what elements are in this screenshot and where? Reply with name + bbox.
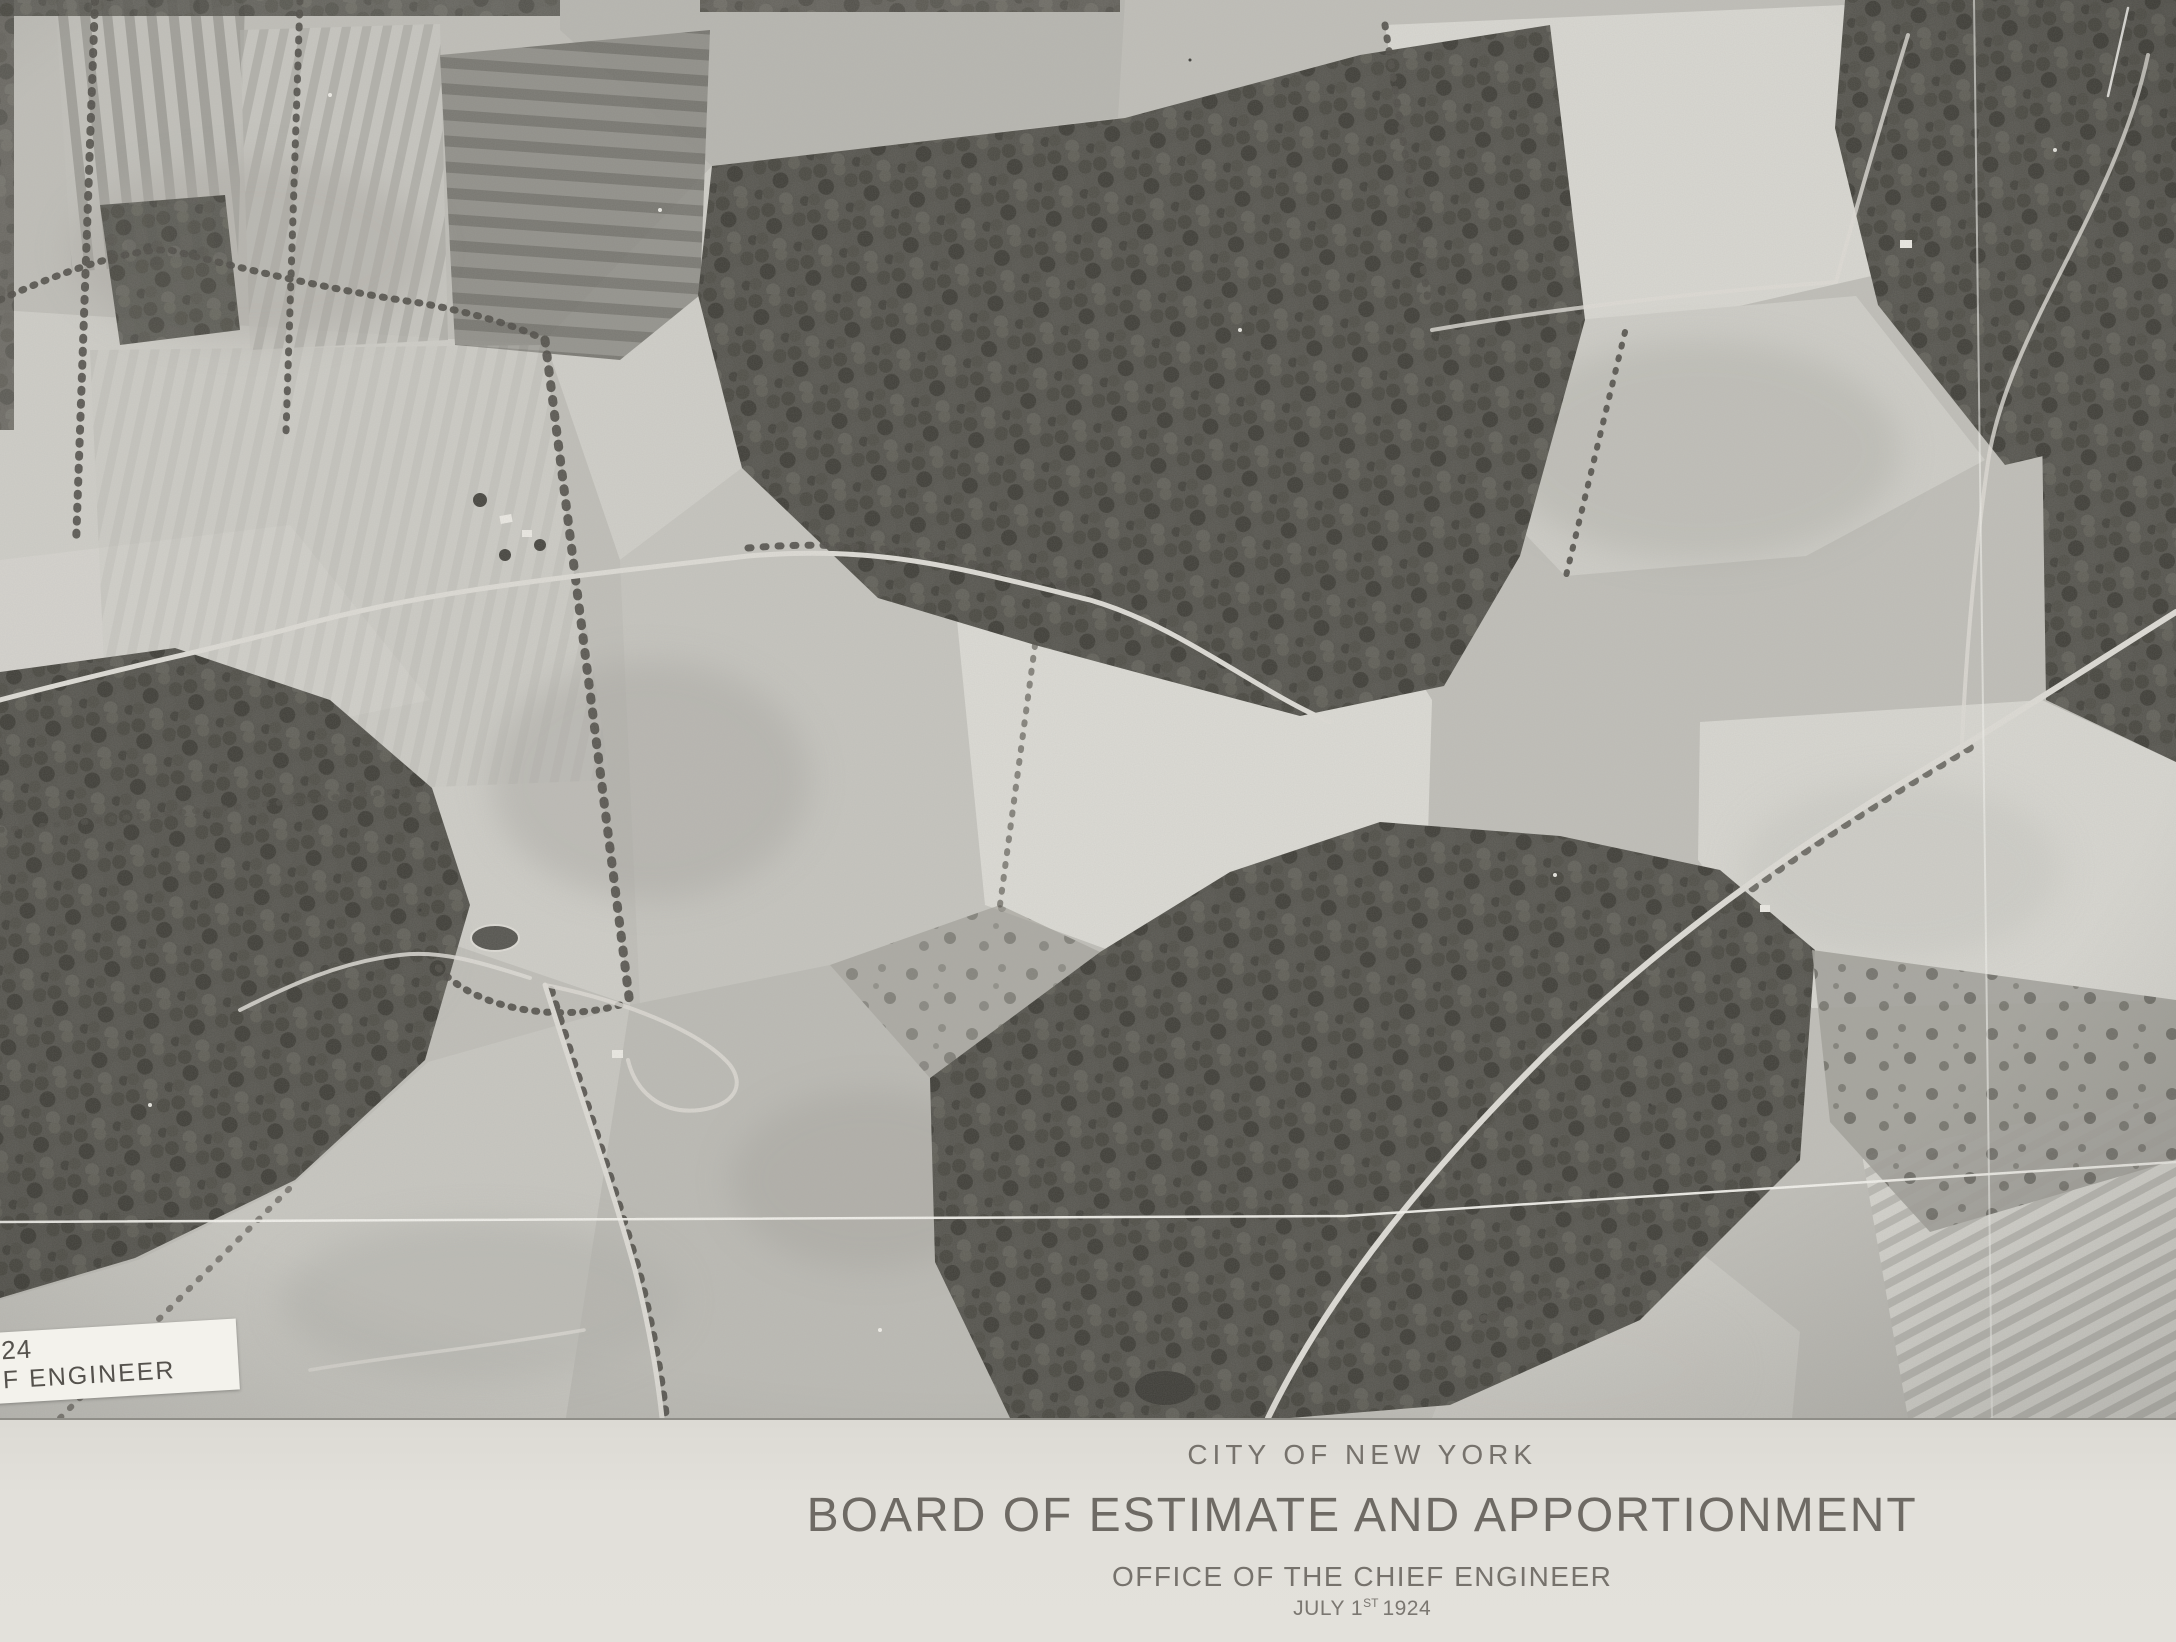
caption-city: CITY OF NEW YORK bbox=[1187, 1441, 1537, 1469]
aerial-photograph: 24 F ENGINEER bbox=[0, 0, 2176, 1418]
caption-office: OFFICE OF THE CHIEF ENGINEER bbox=[1112, 1563, 1612, 1591]
caption-date: JULY 1ST1924 bbox=[1293, 1597, 1431, 1619]
caption-date-suffix: 1924 bbox=[1382, 1597, 1431, 1620]
caption-band: CITY OF NEW YORK BOARD OF ESTIMATE AND A… bbox=[0, 1418, 2176, 1642]
photographic-plate: 24 F ENGINEER CITY OF NEW YORK BOARD OF … bbox=[0, 0, 2176, 1642]
caption-board: BOARD OF ESTIMATE AND APPORTIONMENT bbox=[807, 1492, 1918, 1540]
photo-vignette bbox=[0, 0, 2176, 1418]
aerial-photo-canvas bbox=[0, 0, 2176, 1418]
caption-date-prefix: JULY 1 bbox=[1293, 1597, 1363, 1620]
caption-date-superscript: ST bbox=[1363, 1596, 1378, 1610]
